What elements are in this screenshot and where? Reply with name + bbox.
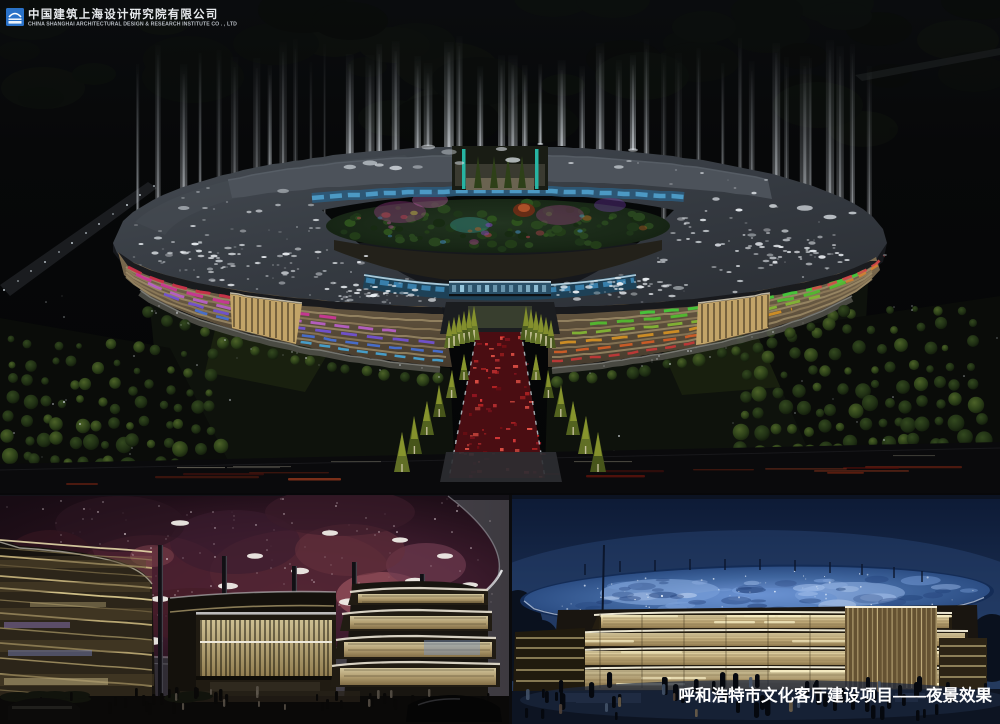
svg-text:CHINA SHANGHAI ARCHITECTURAL D: CHINA SHANGHAI ARCHITECTURAL DESIGN & RE… bbox=[28, 22, 237, 28]
svg-text:中国建筑上海设计研究院有限公司: 中国建筑上海设计研究院有限公司 bbox=[28, 7, 219, 21]
svg-text:呼和浩特市文化客厅建设项目——夜景效果: 呼和浩特市文化客厅建设项目——夜景效果 bbox=[679, 685, 993, 705]
